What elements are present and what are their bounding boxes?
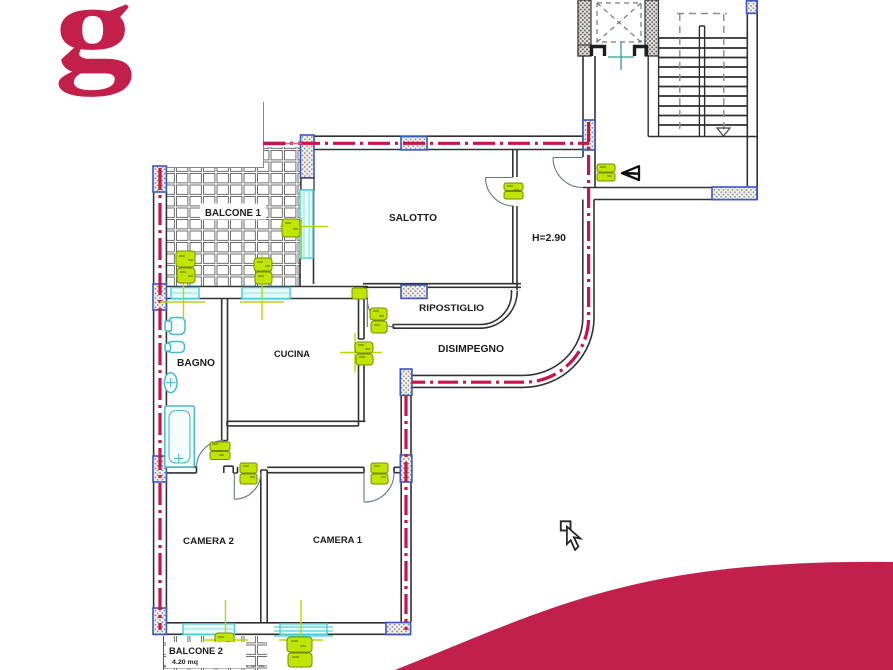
svg-text:CUCINA: CUCINA: [274, 348, 310, 359]
svg-text:4.20 mq: 4.20 mq: [172, 660, 198, 666]
svg-text:CAMERA 2: CAMERA 2: [183, 536, 234, 547]
svg-text:g: g: [54, 0, 133, 96]
svg-text:SALOTTO: SALOTTO: [389, 213, 437, 224]
svg-text:DISIMPEGNO: DISIMPEGNO: [438, 344, 504, 355]
svg-text:BALCONE 2: BALCONE 2: [169, 646, 223, 656]
svg-text:BAGNO: BAGNO: [177, 358, 215, 369]
svg-text:BALCONE 1: BALCONE 1: [205, 208, 261, 219]
svg-text:RIPOSTIGLIO: RIPOSTIGLIO: [419, 303, 484, 313]
svg-text:H=2.90: H=2.90: [532, 233, 566, 244]
svg-text:CAMERA 1: CAMERA 1: [313, 535, 363, 546]
